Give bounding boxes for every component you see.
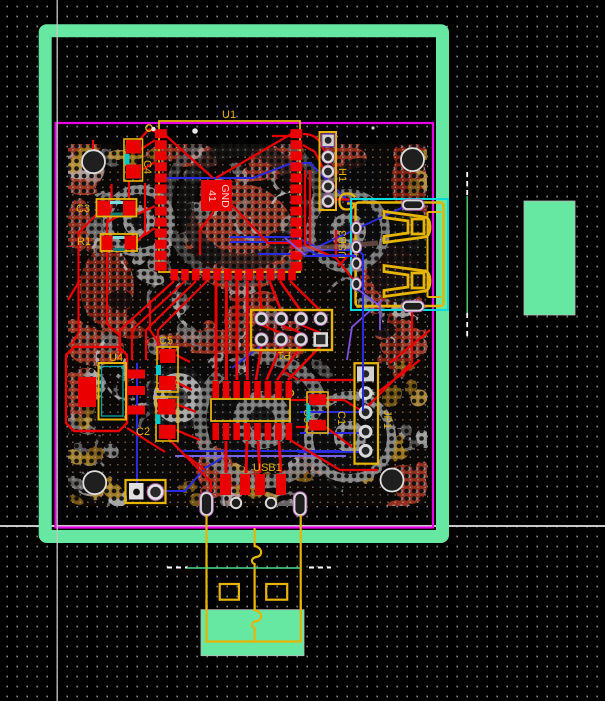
svg-text:U1: U1 xyxy=(222,109,236,121)
svg-text:U4: U4 xyxy=(109,352,123,364)
svg-text:C5: C5 xyxy=(159,335,173,347)
svg-text:H1: H1 xyxy=(336,168,348,182)
svg-text:C3: C3 xyxy=(76,203,90,215)
svg-text:C1: C1 xyxy=(335,411,347,425)
svg-text:41: 41 xyxy=(206,190,218,202)
svg-text:JP1: JP1 xyxy=(381,410,393,429)
svg-text:GND: GND xyxy=(219,184,231,208)
svg-text:P1: P1 xyxy=(277,349,290,361)
svg-text:USB1: USB1 xyxy=(253,462,282,474)
svg-text:C2: C2 xyxy=(136,426,150,438)
svg-text:R1: R1 xyxy=(77,236,91,248)
svg-text:C4: C4 xyxy=(141,160,153,174)
